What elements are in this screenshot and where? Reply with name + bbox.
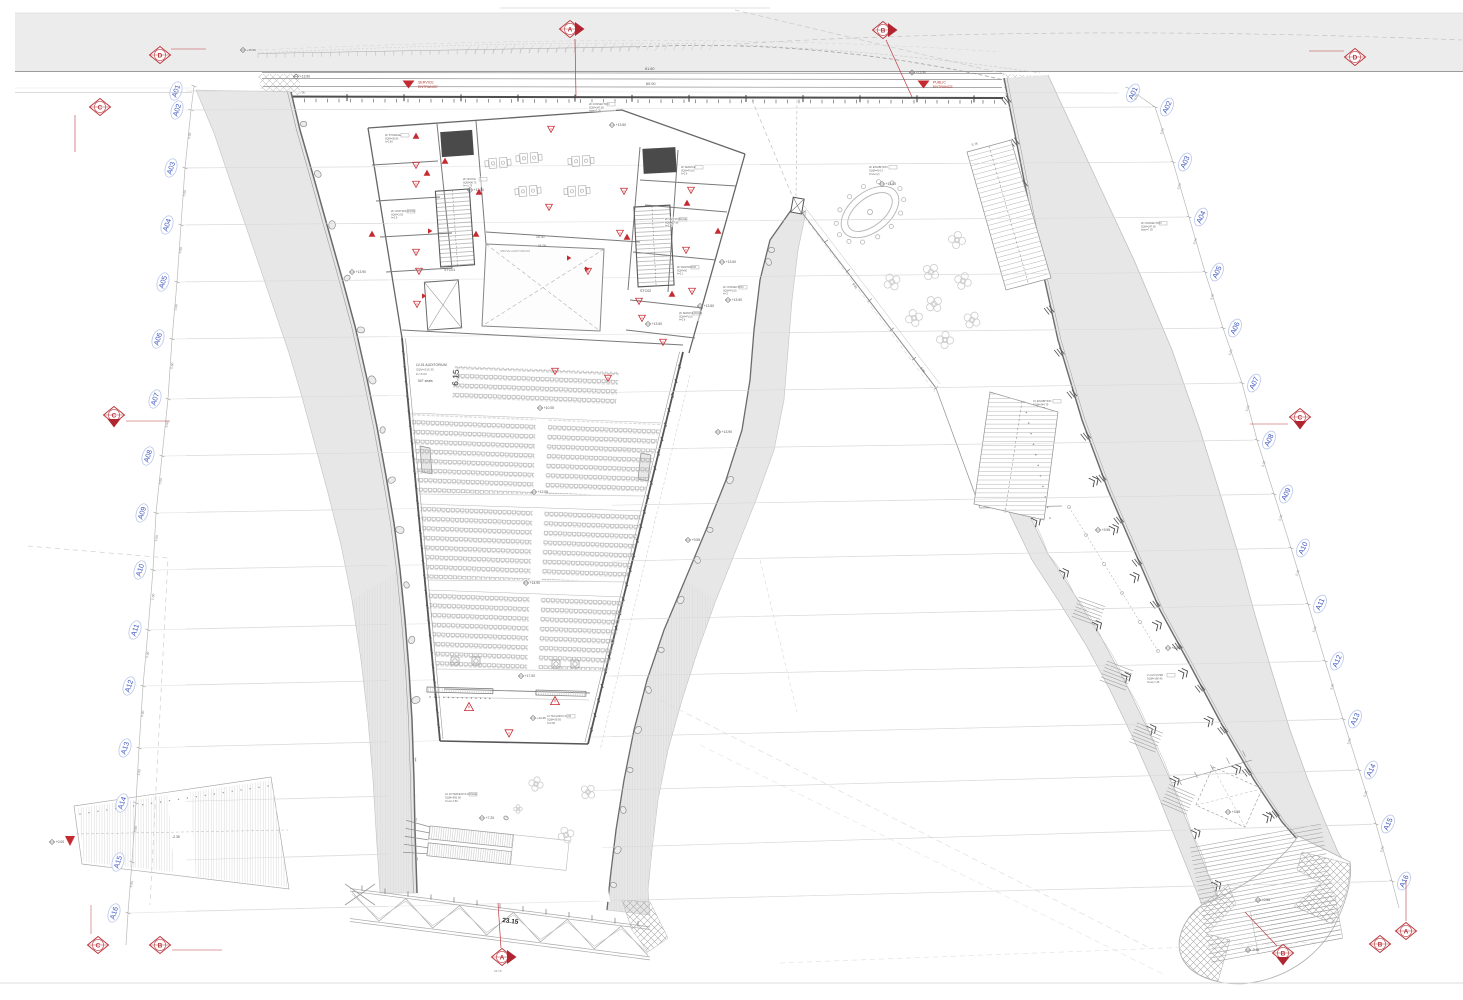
svg-text:+13.00: +13.00 bbox=[886, 182, 897, 186]
svg-text:h=2.6: h=2.6 bbox=[391, 217, 398, 220]
svg-text:h= m.75: h= m.75 bbox=[463, 185, 473, 188]
svg-text:-0.45: -0.45 bbox=[1252, 948, 1260, 952]
svg-text:SQM=516.35: SQM=516.35 bbox=[416, 368, 434, 372]
svg-text:+13.90: +13.90 bbox=[722, 430, 733, 434]
svg-text:6.15: 6.15 bbox=[450, 369, 461, 386]
svg-text:2F EXHIBITION: 2F EXHIBITION bbox=[869, 165, 888, 169]
svg-text:+10.05: +10.05 bbox=[544, 406, 555, 410]
svg-text:SQM=595.00: SQM=595.00 bbox=[445, 796, 461, 800]
svg-text:+0.55: +0.55 bbox=[1262, 898, 1271, 902]
svg-text:+13.50: +13.50 bbox=[726, 260, 737, 264]
svg-text:+13.50: +13.50 bbox=[652, 322, 663, 326]
svg-text:+13.90: +13.90 bbox=[916, 71, 927, 75]
svg-text:h=2.6: h=2.6 bbox=[681, 173, 688, 176]
svg-text:h=2.1: h=2.1 bbox=[677, 273, 684, 276]
svg-text:+13.90: +13.90 bbox=[356, 270, 367, 274]
svg-text:+17.00: +17.00 bbox=[525, 674, 536, 678]
svg-text:+0.00: +0.00 bbox=[56, 840, 65, 844]
svg-text:LV FOYER/EXIT/LOUNGE: LV FOYER/EXIT/LOUNGE bbox=[445, 792, 477, 796]
svg-text:h=var (2): h=var (2) bbox=[869, 172, 880, 176]
svg-text:STC01: STC01 bbox=[444, 268, 455, 272]
svg-text:B: B bbox=[1281, 950, 1286, 957]
svg-text:A: A bbox=[500, 954, 505, 961]
svg-text:B: B bbox=[158, 942, 163, 949]
svg-text:D: D bbox=[158, 52, 163, 59]
svg-text:LV EXHIBITION: LV EXHIBITION bbox=[1033, 399, 1052, 403]
svg-text:+13.90: +13.90 bbox=[732, 298, 743, 302]
svg-text:B: B bbox=[881, 27, 886, 34]
svg-text:+3.55: +3.55 bbox=[1232, 810, 1241, 814]
svg-text:LV-01 AUDITORIUM: LV-01 AUDITORIUM bbox=[416, 363, 447, 367]
svg-text:D: D bbox=[1353, 54, 1358, 61]
svg-text:+9.55: +9.55 bbox=[1102, 528, 1111, 532]
svg-text:STC02: STC02 bbox=[640, 289, 651, 293]
svg-text:h=var 7.25: h=var 7.25 bbox=[1147, 680, 1160, 684]
svg-text:11.00: 11.00 bbox=[538, 244, 546, 248]
svg-text:base=7.35: base=7.35 bbox=[1141, 229, 1153, 232]
svg-text:h=var 4.50: h=var 4.50 bbox=[445, 799, 458, 803]
svg-text:16.00: 16.00 bbox=[536, 235, 545, 239]
svg-text:SERVICE: SERVICE bbox=[418, 81, 434, 85]
svg-text:507 seats: 507 seats bbox=[418, 379, 433, 383]
svg-text:SQM=39.05: SQM=39.05 bbox=[547, 717, 561, 721]
svg-text:61.60: 61.60 bbox=[645, 67, 655, 71]
svg-text:+7.20: +7.20 bbox=[486, 816, 495, 820]
svg-text:+14.90: +14.90 bbox=[530, 581, 541, 585]
svg-text:h=2.6: h=2.6 bbox=[679, 319, 686, 322]
svg-text:SQM=414.2: SQM=414.2 bbox=[869, 168, 883, 172]
svg-text:A: A bbox=[1404, 928, 1409, 935]
svg-text:C: C bbox=[98, 104, 103, 111]
svg-text:-2.35: -2.35 bbox=[172, 835, 180, 839]
svg-text:+6.55: +6.55 bbox=[1172, 646, 1181, 650]
svg-text:+13.90: +13.90 bbox=[300, 75, 311, 79]
svg-text:60.00: 60.00 bbox=[646, 82, 656, 86]
svg-text:h=2.60: h=2.60 bbox=[547, 721, 556, 725]
svg-text:2-4 M FOYER: 2-4 M FOYER bbox=[1147, 673, 1163, 677]
svg-text:+9.55: +9.55 bbox=[692, 538, 701, 542]
svg-text:SQM=196.40: SQM=196.40 bbox=[1147, 676, 1163, 680]
svg-text:h=2.60: h=2.60 bbox=[385, 141, 393, 144]
svg-text:+15.50: +15.50 bbox=[247, 48, 257, 52]
svg-text:+13.50: +13.50 bbox=[616, 123, 627, 127]
svg-text:lm=6.00: lm=6.00 bbox=[416, 372, 427, 376]
svg-text:A: A bbox=[568, 26, 573, 33]
svg-text:23.15: 23.15 bbox=[494, 969, 502, 973]
svg-text:base=7.35: base=7.35 bbox=[589, 110, 601, 113]
svg-text:ABOVE AUDITORIUM: ABOVE AUDITORIUM bbox=[500, 249, 530, 253]
svg-text:h= 5: h= 5 bbox=[723, 293, 729, 296]
svg-text:h=2.6: h=2.6 bbox=[665, 225, 672, 228]
svg-text:B: B bbox=[1378, 941, 1383, 948]
svg-text:ENTRANCE: ENTRANCE bbox=[933, 85, 953, 89]
svg-text:C: C bbox=[96, 942, 101, 949]
svg-text:C: C bbox=[112, 412, 117, 419]
svg-text:PUBLIC: PUBLIC bbox=[933, 81, 946, 85]
svg-text:C: C bbox=[1298, 414, 1303, 421]
svg-text:ENTRANCE: ENTRANCE bbox=[418, 85, 438, 89]
svg-text:+13.50: +13.50 bbox=[704, 304, 715, 308]
svg-text:+13.45: +13.45 bbox=[537, 716, 547, 720]
svg-text:+12.05: +12.05 bbox=[538, 490, 549, 494]
